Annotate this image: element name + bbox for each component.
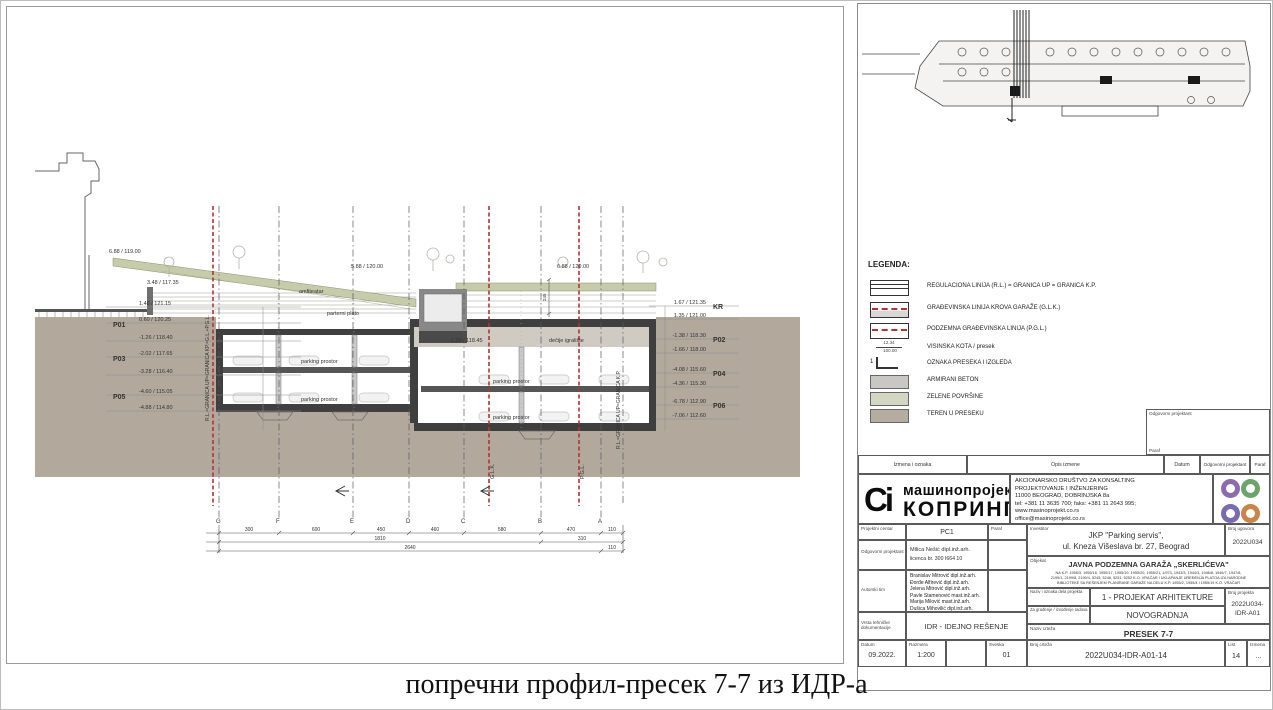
legend-item: REGULACIONA LINIJA (R.L.) = GRANICA UP =…: [870, 280, 909, 295]
approver-box: Odgovorni projektant Paraf: [1146, 409, 1270, 455]
terrain-swatch: [870, 409, 909, 423]
svg-text:245: 245: [542, 293, 547, 301]
decije-igraliste-label: dečije igralište: [549, 338, 584, 344]
za-gradjenje-value-cell: NOVOGRADNJA: [1090, 606, 1225, 624]
level-elev: -1.66 / 118.00: [672, 347, 706, 353]
section-arrows: [336, 486, 494, 496]
svg-text:6.88 / 120.00: 6.88 / 120.00: [557, 264, 589, 270]
svg-text:E: E: [350, 519, 354, 525]
revision-col-odgovorni: Odgovorni projektant: [1200, 455, 1250, 474]
naziv-dela-label-cell: Naziv i oznaka dela projekta: [1027, 588, 1090, 606]
boundary-right-label: R.L.=GRANICA UP=GRANICA K.P.: [616, 370, 622, 449]
level-elev: -4.60 / 115.05: [139, 389, 173, 395]
level-name: P06: [713, 403, 726, 410]
section-mark-symbol: 1: [870, 357, 900, 371]
vrsta-label-cell: Vrsta tehničke dokumentacije: [858, 612, 906, 640]
parterni-plato-label: parterni plato: [327, 311, 359, 317]
sidewalk: [35, 309, 149, 317]
legend-item: PODZEMNA GRAĐEVINSKA LINIJA (P.G.L.): [870, 323, 909, 338]
author-name: Marija Milović mast.inž.arh.: [910, 599, 987, 606]
objekat-cell: Objekat JAVNA PODZEMNA GARAŽA „SKERLIĆEV…: [1027, 556, 1270, 588]
license-stamp-icon: [1221, 504, 1240, 523]
autorski-tim-value-cell: Branislav Mitrović dipl.inž.arh. Đorđe A…: [906, 570, 988, 612]
logo-line1: машинопројект: [903, 484, 1010, 499]
odgovorni-paraf-cell: [988, 540, 1027, 570]
trees: [164, 246, 667, 277]
svg-text:460: 460: [431, 527, 440, 533]
parking-label: parking prostor: [493, 415, 530, 421]
level-elev: -6.78 / 112.90: [672, 399, 706, 405]
company-website-link[interactable]: www.masinoprojekt.co.rs: [1015, 508, 1136, 516]
svg-text:1810: 1810: [374, 536, 385, 542]
level-elev: -4.36 / 115.30: [672, 381, 706, 387]
level-elev: -2.02 / 117.65: [139, 351, 173, 357]
list-cell: List 14: [1225, 640, 1247, 667]
pgl-line-symbol: [870, 323, 909, 339]
autorski-tim-label-cell: Autorski tim: [858, 570, 906, 612]
svg-text:310: 310: [578, 536, 587, 542]
svg-text:600: 600: [312, 527, 321, 533]
level-name: P04: [713, 371, 726, 378]
svg-text:G: G: [216, 519, 221, 525]
legend-title: LEGENDA:: [868, 260, 910, 269]
svg-text:F: F: [276, 519, 280, 525]
pgl-label: P.G.L.: [580, 464, 586, 479]
author-name: Branislav Mitrović dipl.inž.arh.: [910, 573, 987, 580]
svg-text:300: 300: [245, 527, 254, 533]
revision-col-paraf: Paraf: [1250, 455, 1270, 474]
svg-text:110: 110: [608, 527, 616, 533]
boundary-left-label: R.L.=GRANICA UP=GRANICA KP.=G.L.+P.G.L.: [205, 315, 211, 421]
glk-label: G.L.K.: [490, 463, 496, 479]
author-name: Pavle Stamenović mast.inž.arh.: [910, 593, 987, 600]
broj-projekta-cell: Broj projekta 2022U034- IDR-A01: [1225, 588, 1270, 624]
glk-line-symbol: [870, 302, 909, 318]
projektni-centar-label-cell: Projektni centar: [858, 524, 906, 540]
projektni-centar-value-cell: PC1: [906, 524, 988, 540]
license-stamp-icon: [1241, 479, 1260, 498]
paraf-cell: Paraf: [988, 524, 1027, 540]
svg-text:2640: 2640: [404, 545, 415, 551]
revision-col-opis: Opis izmene: [967, 455, 1164, 474]
svg-text:450: 450: [377, 527, 386, 533]
level-name: P02: [713, 337, 726, 344]
garage-a: [216, 319, 418, 423]
license-stamp-icon: [1221, 479, 1240, 498]
level-elev: 1.35 / 121.00: [674, 313, 706, 319]
svg-text:B: B: [538, 519, 542, 525]
sveska-cell: Sveska 01: [986, 640, 1027, 667]
stair-tower: [419, 289, 467, 343]
level-elev: -4.88 / 114.80: [139, 405, 173, 411]
razmera-cell: Razmera 1:200: [906, 640, 946, 667]
odgovorni-value-cell: Milica Nešić dipl.inž.arh. licenca br. 3…: [906, 540, 988, 570]
level-name: P05: [113, 394, 126, 401]
green-area-swatch: [870, 392, 909, 406]
company-logo-icon: Ci: [864, 483, 891, 516]
svg-text:C: C: [461, 519, 466, 525]
odgovorni-label-cell: Odgovorni projektant: [858, 540, 906, 570]
section-drawing-panel: 1.48 / 121.15 0.60 / 120.25 -1.26 / 118.…: [6, 6, 844, 664]
revision-col-izmena: Izmena i oznaka: [858, 455, 967, 474]
grid-letters: G F E D C B A: [216, 519, 602, 525]
svg-text:3.48 / 117.35: 3.48 / 117.35: [147, 280, 179, 286]
level-elev: -4.08 / 115.60: [672, 367, 706, 373]
svg-text:-1.20 / 118.45: -1.20 / 118.45: [449, 338, 483, 344]
parking-label: parking prostor: [493, 379, 530, 385]
parking-label: parking prostor: [301, 397, 338, 403]
level-elev: 1.67 / 121.35: [674, 300, 706, 306]
naziv-dela-value-cell: 1 - PROJEKAT ARHITEKTURE: [1090, 588, 1225, 606]
broj-crteza-cell: Broj crteža 2022U034-IDR-A01-14: [1027, 640, 1225, 667]
legend-item: GRAĐEVINSKA LINIJA KROVA GARAŽE (G.L.K.): [870, 302, 909, 317]
level-elev: 1.48 / 121.15: [139, 301, 171, 307]
naziv-crteza-cell: Naziv crteža PRESEK 7-7: [1027, 624, 1270, 640]
level-name: P01: [113, 322, 126, 329]
stamps-cell: [1213, 474, 1270, 524]
company-info-cell: AKCIONARSKO DRUŠTVO ZA KONSALTING PROJEK…: [1010, 474, 1213, 524]
elevation-mark-symbol: 12.34 100.00: [874, 341, 904, 355]
sheet: 1.48 / 121.15 0.60 / 120.25 -1.26 / 118.…: [0, 0, 1273, 710]
legend-titleblock-panel: LEGENDA: REGULACIONA LINIJA (R.L.) = GRA…: [857, 3, 1271, 691]
svg-text:470: 470: [567, 527, 576, 533]
svg-text:D: D: [406, 519, 411, 525]
vrsta-value-cell: IDR - IDEJNO REŠENJE: [906, 612, 1027, 640]
company-logo-cell: Ci машинопројект КОПРИНГ: [858, 474, 1010, 524]
empty-cell: [946, 640, 986, 667]
author-name: Jelena Mitrović dipl.inž.arh.: [910, 586, 987, 593]
svg-text:580: 580: [498, 527, 507, 533]
svg-text:6.88 / 119.00: 6.88 / 119.00: [109, 249, 141, 255]
dimension-chains: 300 600 450 460 580 470 110 1810 310 264…: [206, 525, 625, 553]
level-name-kr: KR: [713, 304, 723, 311]
level-name: P03: [113, 356, 126, 363]
broj-ugovora-cell: Broj ugovora 2022U034: [1225, 524, 1270, 556]
building-outline: [35, 153, 99, 309]
investitor-cell: Investitor JKP "Parking servis", ul. Kne…: [1027, 524, 1225, 556]
key-plan: [858, 6, 1270, 128]
level-elev: -7.06 / 112.60: [672, 413, 706, 419]
svg-text:5.88 / 120.00: 5.88 / 120.00: [351, 264, 383, 270]
autorski-paraf-cell: [988, 570, 1027, 612]
section-drawing: 1.48 / 121.15 0.60 / 120.25 -1.26 / 118.…: [7, 7, 843, 663]
amfiteatar-label: amfiteatar: [299, 289, 324, 295]
level-elev: -1.26 / 118.40: [139, 335, 173, 341]
parking-label: parking prostor: [301, 359, 338, 365]
izmena-cell: Izmena ...: [1247, 640, 1270, 667]
svg-text:A: A: [598, 519, 602, 525]
author-name: Đorđe Alfirević dipl.inž.arh.: [910, 580, 987, 587]
level-elev: -3.28 / 116.40: [139, 369, 173, 375]
logo-line2: КОПРИНГ: [903, 499, 1010, 520]
za-gradjenje-label-cell: Za građenje / izvođenje radova: [1027, 606, 1090, 624]
datum-cell: Datum 09.2022.: [858, 640, 906, 667]
figure-caption: попречни профил-пресек 7-7 из ИДР-а: [1, 669, 1272, 701]
regulation-line-symbol: [870, 280, 909, 296]
level-elev: -1.38 / 118.30: [672, 333, 706, 339]
company-email-link[interactable]: office@masinoprojekt.co.rs: [1015, 516, 1136, 524]
concrete-swatch: [870, 375, 909, 389]
license-stamp-icon: [1241, 504, 1260, 523]
level-elev: 0.60 / 120.25: [139, 317, 171, 323]
svg-text:110: 110: [608, 545, 616, 551]
revision-col-datum: Datum: [1164, 455, 1200, 474]
